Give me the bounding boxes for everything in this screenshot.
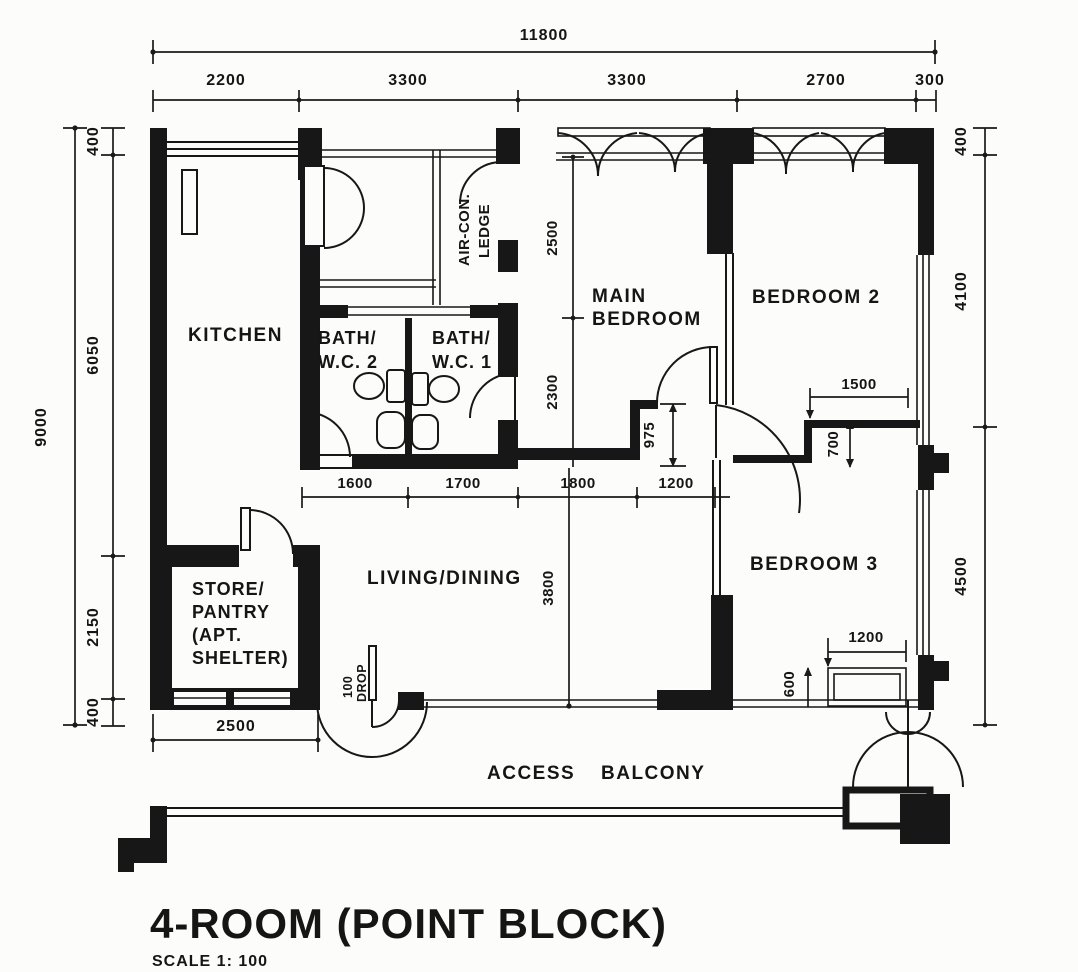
balcony-edge: [118, 790, 950, 872]
dim-left-2150: 2150: [85, 607, 102, 647]
dimension-store: 2500: [151, 714, 321, 752]
room-label-balcony-word1: ACCESS: [487, 763, 575, 784]
toilet-bath1: [412, 373, 459, 405]
dim-left-overall: 9000: [33, 407, 50, 447]
floor-plan-drawing: 11800 2200 3300 3300 2700 300 9000 400 6…: [0, 0, 1078, 972]
dim-bed3-1200: 1200: [848, 629, 883, 646]
dim-bed3-600: 600: [781, 671, 798, 698]
dim-top-3300b: 3300: [607, 72, 647, 89]
room-label-bath1-line2: W.C. 1: [432, 352, 492, 372]
dim-left-6050: 6050: [85, 335, 102, 375]
dim-row-1800: 1800: [560, 475, 595, 492]
dim-overall-width: 11800: [520, 27, 569, 44]
dim-top-300: 300: [915, 72, 945, 89]
dim-left-400b: 400: [85, 697, 102, 727]
title-block: 4-ROOM (POINT BLOCK) SCALE 1: 100: [150, 900, 667, 970]
walls: [150, 128, 949, 710]
dim-row-1700: 1700: [445, 475, 480, 492]
room-label-bath2-line2: W.C. 2: [318, 352, 378, 372]
room-label-balcony-word2: BALCONY: [601, 763, 705, 784]
room-label-mainbed-line1: MAIN: [592, 286, 647, 307]
dimension-row-interior: 1600 1700 1800 1200: [302, 475, 730, 508]
dim-bed2-1500: 1500: [841, 376, 876, 393]
main-bedroom-window: [556, 128, 710, 176]
room-label-aircon-line1: AIR-CON.: [456, 194, 473, 266]
dimension-niche-975: 975: [641, 403, 686, 467]
room-label-store-line1: STORE/: [192, 579, 265, 599]
basin-bath1: [412, 415, 438, 449]
room-label-mainbed-line2: BEDROOM: [592, 309, 702, 330]
stair-pier: [900, 794, 950, 844]
dim-living-3800: 3800: [540, 570, 557, 605]
room-label-bath1-line1: BATH/: [432, 328, 491, 348]
dim-niche-975: 975: [641, 422, 658, 449]
dim-mainbed-2300: 2300: [544, 374, 561, 409]
room-label-store-line2: PANTRY: [192, 602, 270, 622]
main-bedroom-door: [657, 347, 717, 403]
drawing-scale: SCALE 1: 100: [152, 953, 268, 970]
toilet-bath2: [354, 370, 405, 402]
dim-bed2-700: 700: [825, 431, 842, 458]
windows: [167, 128, 929, 706]
dim-top-2700: 2700: [806, 72, 846, 89]
room-label-living: LIVING/DINING: [367, 568, 522, 589]
duct-double-door: [304, 166, 364, 248]
dim-store-2500: 2500: [216, 718, 256, 735]
dim-row-1600: 1600: [337, 475, 372, 492]
room-label-bedroom3: BEDROOM 3: [750, 554, 879, 575]
dimension-main-bedroom: 2500 2300: [544, 155, 584, 467]
dim-mainbed-2500: 2500: [544, 220, 561, 255]
room-label-bath2-line1: BATH/: [318, 328, 377, 348]
dim-right-400: 400: [953, 126, 970, 156]
dim-top-3300a: 3300: [388, 72, 428, 89]
dimension-lines-top: 11800 2200 3300 3300 2700 300: [150, 27, 944, 112]
dim-top-2200: 2200: [206, 72, 246, 89]
bedroom3-bay-window: [828, 668, 906, 706]
kitchen-counter: [182, 170, 197, 234]
annotation-drop-line1: 100: [341, 676, 355, 698]
bath1-door: [470, 373, 515, 420]
aircon-ledge-wall: [320, 150, 440, 305]
room-label-store-line4: SHELTER): [192, 648, 289, 668]
basin-bath2: [377, 412, 405, 448]
dim-right-4100: 4100: [953, 271, 970, 311]
dimension-lines-right: 400 4100 4500: [953, 126, 997, 727]
room-label-aircon-line2: LEDGE: [476, 204, 493, 258]
dim-right-4500: 4500: [953, 556, 970, 596]
floor-plan-sheet: 11800 2200 3300 3300 2700 300 9000 400 6…: [0, 0, 1078, 972]
balcony-corner-pier: [118, 806, 167, 863]
dim-left-400a: 400: [85, 126, 102, 156]
dim-row-1200: 1200: [658, 475, 693, 492]
room-label-store-line3: (APT.: [192, 625, 242, 645]
room-label-kitchen: KITCHEN: [188, 325, 283, 346]
dimension-lines-left: 9000 400 6050 2150 400: [33, 125, 125, 727]
dimension-living-3800: 3800: [540, 468, 572, 709]
room-label-bedroom2: BEDROOM 2: [752, 287, 881, 308]
drawing-title: 4-ROOM (POINT BLOCK): [150, 900, 667, 947]
bedroom2-top-window: [753, 128, 885, 174]
balcony-door: [853, 700, 963, 788]
annotation-drop-line2: DROP: [355, 664, 369, 702]
